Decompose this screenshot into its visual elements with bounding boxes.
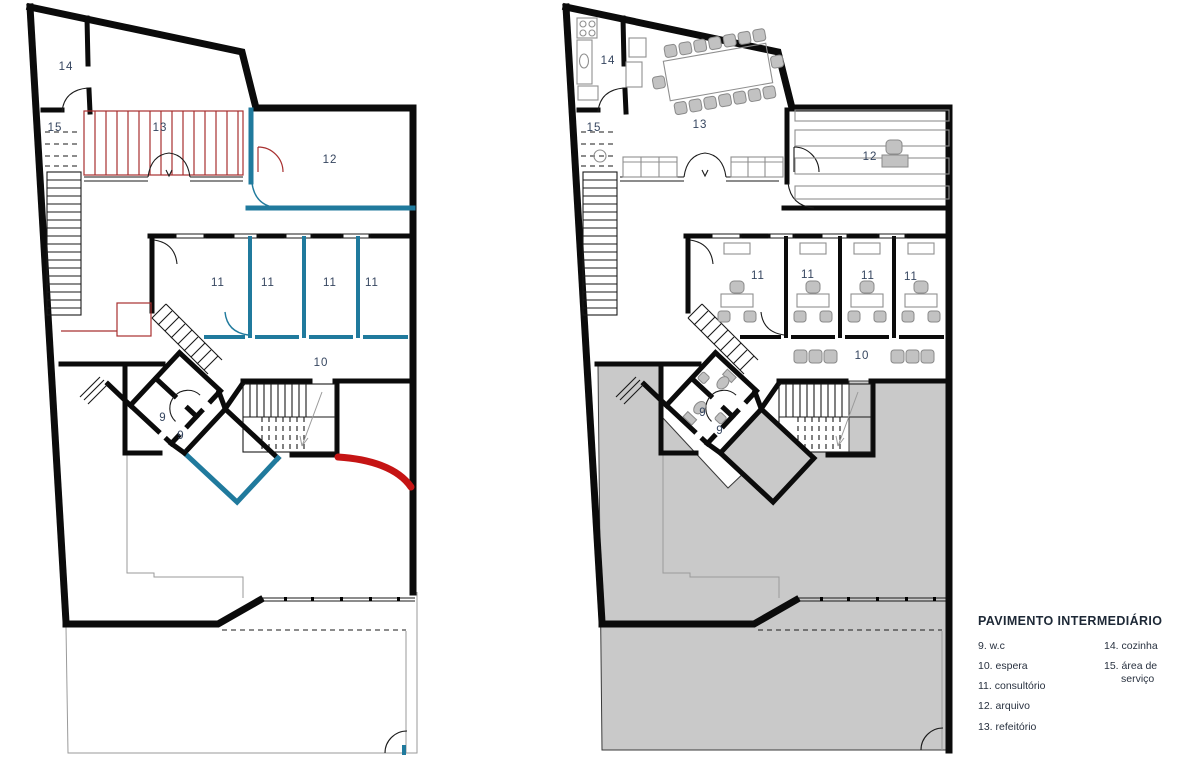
room-label-consultorio: 11 — [365, 277, 379, 289]
legend-item-consultorio: 11. consultório — [978, 680, 1104, 693]
room-label-espera: 10 — [314, 357, 329, 369]
sofas — [623, 157, 783, 177]
legend-item-area-servico: 15. área de serviço — [1104, 660, 1186, 686]
room-label-consultorio: 11 — [211, 277, 225, 289]
room-label-cozinha: 14 — [59, 61, 74, 73]
red-curved-wall — [338, 457, 411, 487]
room-label-cozinha: 14 — [601, 55, 616, 67]
room-label-area-servico: 15 — [48, 122, 63, 134]
teal-highlight-walls — [206, 110, 413, 337]
desk-set — [794, 243, 832, 322]
room-label-consultorio: 11 — [801, 269, 815, 281]
legend: PAVIMENTO INTERMEDIÁRIO 9. w.c 10. esper… — [978, 614, 1186, 741]
room-label-area-servico: 15 — [587, 122, 602, 134]
service-stairs — [45, 132, 81, 315]
wc-entry-wall — [108, 384, 131, 406]
room-label-arquivo: 12 — [323, 154, 338, 166]
room-label-wc: 9 — [716, 425, 723, 437]
dining-table-and-chairs — [647, 26, 789, 118]
legend-item-refeitorio: 13. refeitório — [978, 721, 1104, 734]
service-stairs — [581, 132, 617, 315]
left-floor-plan: 14 15 13 12 11 11 11 11 10 9 9 — [30, 7, 417, 753]
right-floor-plan: 14 15 13 12 11 11 11 11 10 9 9 — [566, 7, 951, 750]
room-label-wc: 9 — [177, 430, 184, 442]
legend-column-1: 9. w.c 10. espera 11. consultório 12. ar… — [978, 640, 1104, 741]
room-13-hatch — [84, 111, 243, 175]
room-label-consultorio: 11 — [323, 277, 337, 289]
legend-item-wc: 9. w.c — [978, 640, 1104, 653]
desk-set — [848, 243, 886, 322]
room-label-refeitorio: 13 — [153, 122, 168, 134]
room-label-refeitorio: 13 — [693, 119, 708, 131]
legend-column-2: 14. cozinha 15. área de serviço — [1104, 640, 1186, 741]
door-hatch-marks — [80, 377, 108, 404]
room-label-arquivo: 12 — [863, 151, 878, 163]
red-door-arc — [258, 147, 283, 172]
room-label-consultorio: 11 — [261, 277, 275, 289]
legend-item-cozinha: 14. cozinha — [1104, 640, 1186, 653]
room-label-consultorio: 11 — [751, 270, 765, 282]
room-label-wc: 9 — [159, 412, 166, 424]
legend-item-arquivo: 12. arquivo — [978, 700, 1104, 713]
kitchen-furniture — [577, 18, 646, 162]
legend-title: PAVIMENTO INTERMEDIÁRIO — [978, 614, 1186, 628]
room-label-consultorio: 11 — [904, 271, 918, 283]
desk-set — [718, 243, 756, 322]
red-shaft-outline — [117, 303, 151, 336]
room-label-wc: 9 — [699, 407, 706, 419]
room-label-consultorio: 11 — [861, 270, 875, 282]
room-label-espera: 10 — [855, 350, 870, 362]
legend-item-espera: 10. espera — [978, 660, 1104, 673]
floor-plan-sheet: 14 15 13 12 11 11 11 11 10 9 9 — [0, 0, 1189, 777]
